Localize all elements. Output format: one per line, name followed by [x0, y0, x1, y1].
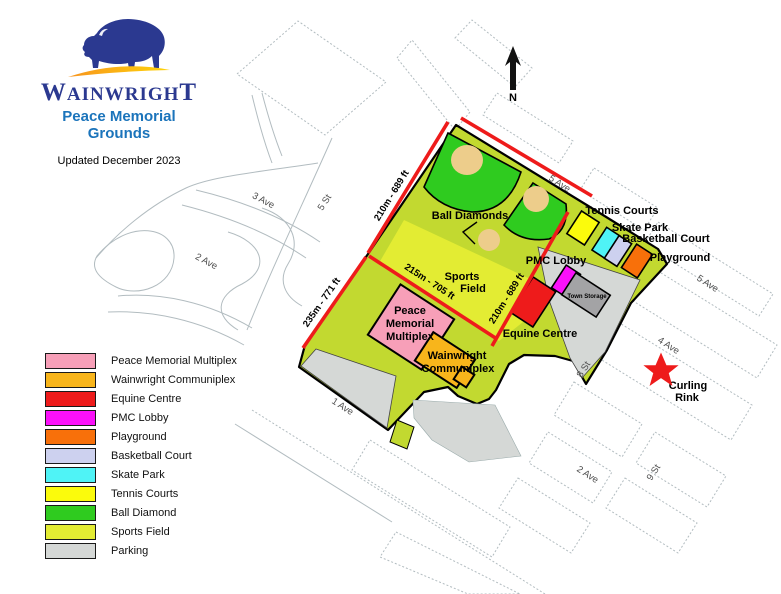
north-label: N — [509, 92, 517, 104]
residential-street — [262, 208, 302, 306]
legend-label: Ball Diamond — [111, 507, 176, 519]
legend-swatch — [45, 391, 96, 407]
legend-label: Basketball Court — [111, 450, 192, 462]
legend-swatch — [45, 543, 96, 559]
legend-item: Sports Field — [45, 522, 237, 541]
legend-item: Parking — [45, 541, 237, 560]
legend-label: PMC Lobby — [111, 412, 168, 424]
ball-diamond-infield-2 — [523, 186, 549, 212]
bison-icon — [83, 19, 165, 69]
street-block — [554, 382, 642, 457]
legend-swatch — [45, 486, 96, 502]
page-title: Peace Memorial Grounds — [33, 109, 205, 143]
curling-rink-label-line1: Curling — [669, 380, 708, 392]
legend-label: Playground — [111, 431, 167, 443]
legend-label: Tennis Courts — [111, 488, 178, 500]
legend-item: Playground — [45, 427, 237, 446]
legend: Peace Memorial Multiplex Wainwright Comm… — [45, 351, 237, 560]
legend-swatch — [45, 429, 96, 445]
legend-item: Ball Diamond — [45, 503, 237, 522]
communiplex-label-line1: Wainwright — [428, 350, 487, 362]
residential-street — [182, 205, 306, 258]
legend-swatch — [45, 467, 96, 483]
residential-street — [118, 295, 252, 328]
legend-label: Equine Centre — [111, 393, 181, 405]
multiplex-label-line1: Peace — [394, 305, 426, 317]
residential-street — [252, 95, 272, 163]
wordmark-first-letter: W — [41, 79, 67, 106]
legend-swatch — [45, 353, 96, 369]
legend-swatch — [45, 505, 96, 521]
legend-item: PMC Lobby — [45, 408, 237, 427]
communiplex-label-line2: Communiplex — [422, 363, 496, 375]
gold-swoosh-icon — [68, 66, 170, 77]
ball-diamond-infield-3 — [478, 229, 500, 251]
wordmark-middle: AINWRIGH — [67, 84, 180, 105]
street-line — [235, 424, 392, 522]
legend-label: Wainwright Communiplex — [111, 374, 235, 386]
wordmark-last-letter: T — [179, 79, 197, 106]
parking-area-south — [413, 400, 521, 462]
page-title-line1: Peace Memorial — [33, 109, 205, 126]
equine-centre-label: Equine Centre — [503, 328, 578, 340]
street-block — [380, 532, 520, 594]
legend-label: Skate Park — [111, 469, 165, 481]
playground-label: Playground — [650, 252, 711, 264]
legend-item: Basketball Court — [45, 446, 237, 465]
updated-date: Updated December 2023 — [33, 155, 205, 167]
legend-swatch — [45, 524, 96, 540]
legend-label: Parking — [111, 545, 148, 557]
legend-swatch — [45, 372, 96, 388]
legend-label: Peace Memorial Multiplex — [111, 355, 237, 367]
residential-street — [94, 231, 174, 291]
ball-diamond-infield-1 — [451, 145, 483, 175]
tennis-courts-label: Tennis Courts — [585, 205, 658, 217]
multiplex-label-line3: Multiplex — [386, 331, 435, 343]
sports-field-label-line2: Field — [460, 283, 486, 295]
north-arrow: N — [505, 46, 521, 104]
basketball-court-label: Basketball Court — [622, 233, 710, 245]
brand-header: WAINWRIGHT Peace Memorial Grounds Update… — [33, 14, 205, 167]
page-title-line2: Grounds — [33, 126, 205, 143]
legend-item: Tennis Courts — [45, 484, 237, 503]
street-block — [397, 40, 470, 130]
street-label-2ave-right: 2 Ave — [574, 464, 600, 486]
street-label-9st: 9 St — [645, 462, 664, 482]
street-label-5ave-right: 5 Ave — [694, 273, 720, 295]
legend-item: Wainwright Communiplex — [45, 370, 237, 389]
residential-street — [262, 93, 282, 156]
street-label-5st: 5 St — [316, 192, 335, 212]
street-block — [606, 478, 697, 553]
legend-label: Sports Field — [111, 526, 170, 538]
curling-rink-label-line2: Rink — [675, 392, 700, 404]
legend-item: Equine Centre — [45, 389, 237, 408]
sports-field-label-line1: Sports — [445, 271, 480, 283]
legend-swatch — [45, 410, 96, 426]
north-arrow-icon — [505, 46, 521, 90]
multiplex-label-line2: Memorial — [386, 318, 434, 330]
legend-item: Peace Memorial Multiplex — [45, 351, 237, 370]
legend-swatch — [45, 448, 96, 464]
wainwright-logo — [49, 14, 189, 82]
street-label-2ave-left: 2 Ave — [193, 251, 219, 272]
town-storage-label: Town Storage — [567, 294, 607, 300]
legend-item: Skate Park — [45, 465, 237, 484]
ball-diamonds-label: Ball Diamonds — [432, 210, 508, 222]
wordmark: WAINWRIGHT — [33, 80, 205, 105]
street-label-4ave: 4 Ave — [655, 335, 681, 357]
street-block — [237, 21, 386, 135]
site-map-page: 210m - 689 ft 235m - 771 ft 215m - 705 f… — [0, 0, 781, 594]
street-block — [455, 20, 532, 87]
street-block — [499, 478, 590, 553]
pmc-lobby-label: PMC Lobby — [526, 255, 587, 267]
